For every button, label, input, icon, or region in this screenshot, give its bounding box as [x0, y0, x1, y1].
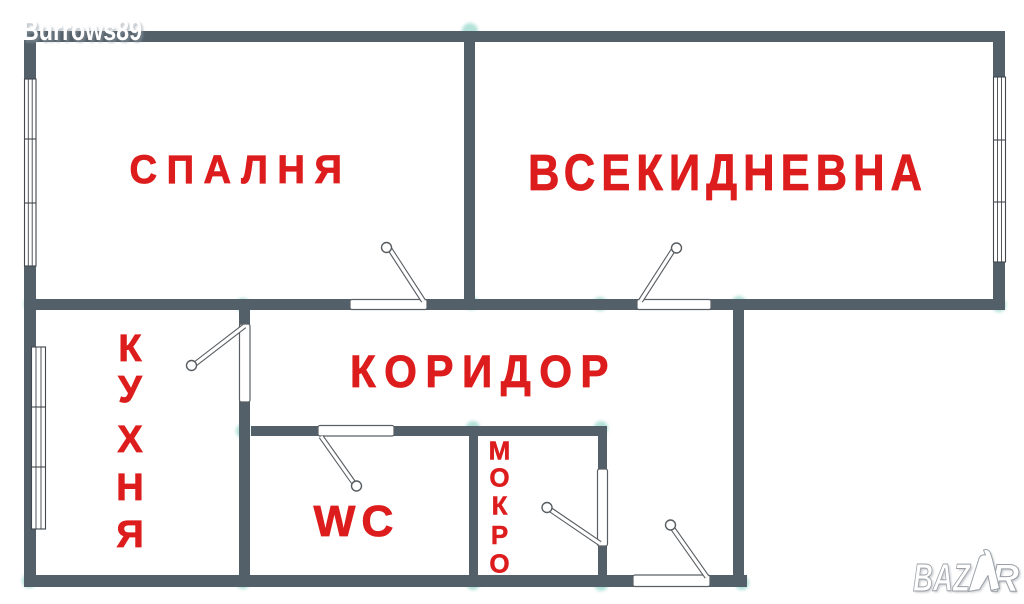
svg-text:Я: Я	[116, 514, 143, 556]
svg-text:К: К	[492, 491, 508, 521]
svg-text:КОРИДОР: КОРИДОР	[350, 346, 617, 397]
svg-text:BAZ: BAZ	[913, 557, 972, 600]
svg-text:У: У	[118, 369, 142, 411]
svg-text:ВСЕКИДНЕВНА: ВСЕКИДНЕВНА	[528, 144, 928, 201]
svg-text:О: О	[489, 549, 509, 579]
svg-text:О: О	[489, 463, 509, 493]
svg-text:СПАЛНЯ: СПАЛНЯ	[130, 148, 352, 192]
svg-text:Р: Р	[491, 520, 508, 550]
svg-text:WC: WC	[314, 497, 400, 546]
svg-text:Х: Х	[117, 419, 143, 461]
svg-text:М: М	[489, 436, 511, 466]
svg-text:К: К	[118, 328, 142, 370]
svg-text:Н: Н	[116, 467, 143, 509]
svg-text:Burrows89: Burrows89	[22, 15, 142, 47]
